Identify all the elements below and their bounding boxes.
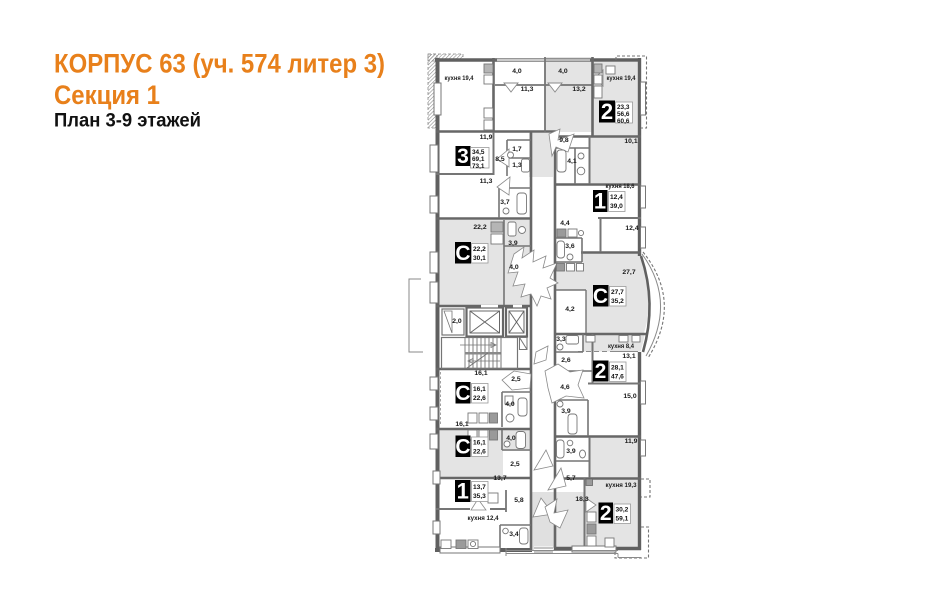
svg-text:С: С xyxy=(455,382,470,405)
svg-text:22,2: 22,2 xyxy=(473,224,486,231)
svg-text:56,6: 56,6 xyxy=(617,111,630,118)
svg-text:73,1: 73,1 xyxy=(472,163,485,170)
svg-text:кухня 8,4: кухня 8,4 xyxy=(608,343,634,350)
svg-text:22,6: 22,6 xyxy=(473,449,486,456)
svg-text:С: С xyxy=(455,436,470,459)
svg-text:34,5: 34,5 xyxy=(472,149,485,156)
svg-text:3,6: 3,6 xyxy=(565,243,575,250)
svg-text:16,1: 16,1 xyxy=(473,440,486,447)
svg-text:23,3: 23,3 xyxy=(617,104,630,111)
svg-text:16,1: 16,1 xyxy=(473,386,486,393)
svg-text:План 3-9 этажей: План 3-9 этажей xyxy=(54,111,201,132)
svg-text:60,6: 60,6 xyxy=(617,118,630,125)
svg-text:5,8: 5,8 xyxy=(514,497,524,504)
svg-text:9,8: 9,8 xyxy=(559,137,569,144)
svg-text:30,2: 30,2 xyxy=(616,507,629,514)
svg-text:4,2: 4,2 xyxy=(565,306,575,313)
svg-text:3,4: 3,4 xyxy=(509,531,519,538)
svg-text:22,2: 22,2 xyxy=(473,246,486,253)
svg-text:3,9: 3,9 xyxy=(566,448,576,455)
svg-text:4,0: 4,0 xyxy=(506,435,516,442)
svg-text:16,1: 16,1 xyxy=(474,370,487,377)
svg-text:кухня 18,6: кухня 18,6 xyxy=(606,183,635,190)
svg-text:2: 2 xyxy=(595,360,607,383)
svg-text:8,5: 8,5 xyxy=(495,156,505,163)
svg-text:22,6: 22,6 xyxy=(473,395,486,402)
svg-text:12,4: 12,4 xyxy=(625,225,638,232)
svg-text:47,6: 47,6 xyxy=(611,374,624,381)
svg-text:28,1: 28,1 xyxy=(611,365,624,372)
svg-text:4,6: 4,6 xyxy=(560,384,570,391)
svg-text:30,1: 30,1 xyxy=(473,255,486,262)
svg-text:1,3: 1,3 xyxy=(512,162,522,169)
svg-text:11,3: 11,3 xyxy=(521,86,534,93)
svg-text:4,1: 4,1 xyxy=(567,158,577,165)
svg-text:3,9: 3,9 xyxy=(508,240,518,247)
svg-text:5,7: 5,7 xyxy=(566,475,576,482)
svg-text:3,7: 3,7 xyxy=(500,199,510,206)
svg-text:13,7: 13,7 xyxy=(493,475,506,482)
svg-text:18,3: 18,3 xyxy=(575,496,588,503)
svg-text:27,7: 27,7 xyxy=(622,269,635,276)
svg-text:11,9: 11,9 xyxy=(480,134,493,141)
svg-text:4,0: 4,0 xyxy=(505,401,515,408)
svg-text:13,1: 13,1 xyxy=(622,353,635,360)
svg-text:69,1: 69,1 xyxy=(472,156,485,163)
svg-text:кухня 19,4: кухня 19,4 xyxy=(607,75,636,82)
svg-text:2: 2 xyxy=(601,99,613,124)
svg-text:4,4: 4,4 xyxy=(560,220,570,227)
svg-text:3: 3 xyxy=(457,145,469,168)
svg-text:С: С xyxy=(593,285,608,308)
svg-text:4,0: 4,0 xyxy=(509,264,519,271)
svg-text:35,2: 35,2 xyxy=(611,298,624,305)
svg-text:2,6: 2,6 xyxy=(561,357,571,364)
svg-text:27,7: 27,7 xyxy=(611,289,624,296)
svg-text:2,0: 2,0 xyxy=(452,318,462,325)
svg-text:1,7: 1,7 xyxy=(512,146,522,153)
svg-text:16,1: 16,1 xyxy=(455,421,468,428)
svg-text:12,4: 12,4 xyxy=(610,194,623,201)
svg-text:кухня 19,3: кухня 19,3 xyxy=(606,482,637,489)
svg-text:35,3: 35,3 xyxy=(473,493,486,500)
svg-text:15,0: 15,0 xyxy=(623,393,636,400)
svg-text:С: С xyxy=(455,242,470,265)
svg-text:2: 2 xyxy=(600,502,612,525)
svg-text:4,0: 4,0 xyxy=(558,68,568,75)
svg-text:КОРПУС 63 (уч. 574 литер 3): КОРПУС 63 (уч. 574 литер 3) xyxy=(54,49,385,79)
svg-text:кухня 12,4: кухня 12,4 xyxy=(468,515,499,522)
svg-text:13,2: 13,2 xyxy=(572,86,585,93)
svg-text:4,0: 4,0 xyxy=(512,68,522,75)
svg-text:13,7: 13,7 xyxy=(473,484,486,491)
svg-text:кухня 19,4: кухня 19,4 xyxy=(445,75,474,82)
svg-text:1: 1 xyxy=(457,479,469,504)
svg-text:11,9: 11,9 xyxy=(625,438,638,445)
svg-text:10,1: 10,1 xyxy=(624,138,637,145)
svg-text:11,3: 11,3 xyxy=(480,178,493,185)
svg-text:39,0: 39,0 xyxy=(610,203,623,210)
svg-text:1: 1 xyxy=(594,189,606,214)
svg-text:Секция 1: Секция 1 xyxy=(54,80,160,110)
svg-text:3,9: 3,9 xyxy=(561,408,571,415)
svg-text:2,5: 2,5 xyxy=(510,461,520,468)
svg-text:3,3: 3,3 xyxy=(556,336,566,343)
svg-text:59,1: 59,1 xyxy=(616,516,629,523)
svg-text:2,5: 2,5 xyxy=(511,376,521,383)
